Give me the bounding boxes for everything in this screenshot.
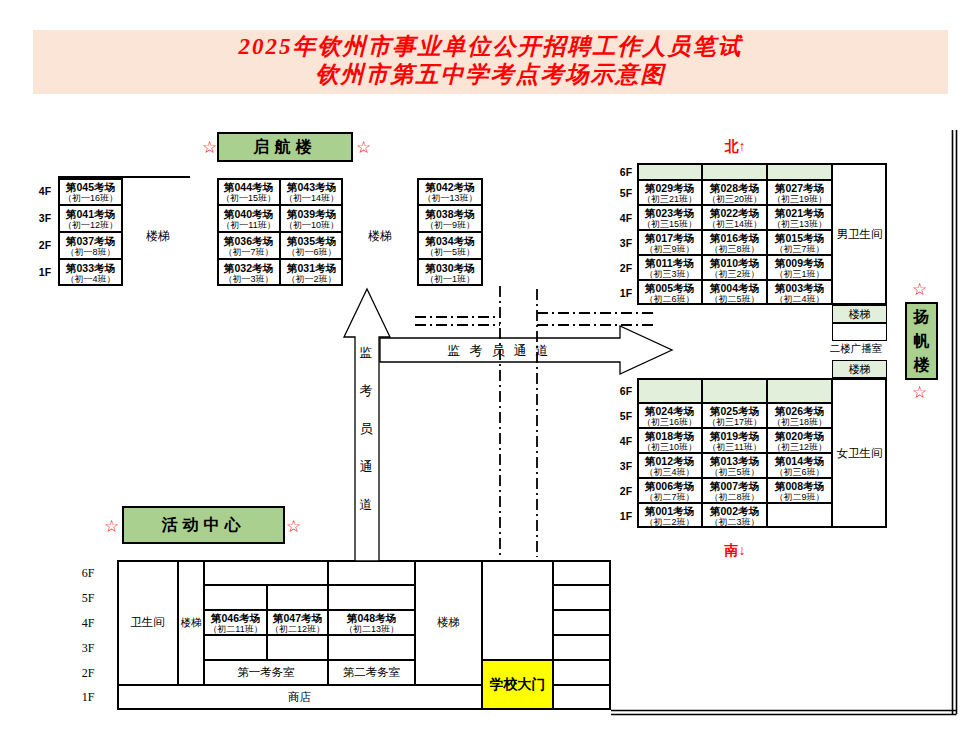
- exam-room-number: 第041考场: [66, 208, 115, 220]
- exam-room-cell: 第035考场 （初一6班）: [280, 232, 343, 259]
- exam-room-cell: 第037考场 （初一8班）: [58, 232, 123, 259]
- exam-room-class: （初三15班）: [642, 219, 697, 229]
- empty-cell: [482, 560, 553, 660]
- empty-cell: [832, 323, 887, 341]
- exam-room-number: 第019考场: [710, 430, 759, 442]
- yangfan-south-floor-4f: 4F: [617, 434, 635, 448]
- exam-room-cell: 第003考场 （初二4班）: [767, 280, 832, 305]
- exam-room-number: 第045考场: [66, 181, 115, 193]
- exam-room-number: 第021考场: [775, 207, 824, 219]
- empty-cell: [553, 560, 611, 585]
- exam-room-class: （初二2班）: [644, 517, 694, 527]
- exam-room-class: （初一10班）: [284, 220, 339, 230]
- exam-room-cell: 第025考场 （初三17班）: [702, 403, 767, 428]
- exam-room-number: 第027考场: [775, 182, 824, 194]
- exam-room-class: （初三18班）: [772, 417, 827, 427]
- exam-room-number: 第048考场: [347, 612, 396, 624]
- exam-room-cell: 第007考场 （初二8班）: [702, 478, 767, 503]
- empty-cell: [204, 635, 267, 660]
- yangfan-north-rooms: 第029考场 （初三21班） 第028考场 （初三20班） 第027考场 （初三…: [637, 180, 832, 305]
- exam-room-cell: 第002考场 （初二3班）: [702, 503, 767, 528]
- star-icon: ☆: [104, 518, 119, 535]
- exam-room-class: （初一11班）: [221, 220, 275, 230]
- empty-cell: [553, 685, 611, 710]
- shop-cell: 商店: [117, 685, 482, 710]
- empty-cell: [328, 585, 415, 610]
- exam-room-number: 第005考场: [645, 282, 694, 294]
- exam-room-cell: 第009考场 （初三1班）: [767, 255, 832, 280]
- exam-room-class: （初一7班）: [223, 247, 273, 257]
- exam-room-cell: 第040考场 （初一11班）: [217, 205, 280, 232]
- exam-room-cell: 第038考场 （初一9班）: [417, 205, 483, 232]
- empty-cell: [637, 163, 702, 180]
- empty-cell: [553, 660, 611, 685]
- empty-cell: [702, 163, 767, 180]
- exam-room-cell: 第042考场 （初一13班）: [417, 178, 483, 205]
- invigilator-corridor-label-horizontal: 监考员通道: [390, 342, 615, 360]
- yangfan-south-floor-1f: 1F: [617, 509, 635, 523]
- yangfan-south-floor-6f: 6F: [617, 384, 635, 398]
- star-icon: ☆: [286, 518, 301, 535]
- exam-room-number: 第001考场: [645, 505, 694, 517]
- stairs-cell: 楼梯: [832, 305, 887, 323]
- west-annex-stairs-label: 楼梯: [130, 229, 186, 243]
- west-floor-1f: 1F: [34, 265, 56, 279]
- exam-room-number: 第036考场: [224, 235, 273, 247]
- exam-room-number: 第039考场: [287, 208, 336, 220]
- activity-floor-3f: 3F: [74, 641, 102, 655]
- exam-room-class: （初一1班）: [425, 274, 475, 284]
- qihang-right-wing-rooms: 第042考场 （初一13班） 第038考场 （初一9班） 第034考场 （初一5…: [417, 178, 483, 286]
- exam-room-class: （初三14班）: [707, 219, 762, 229]
- invigilator-corridor-label-vertical: 监考员通道: [356, 334, 376, 534]
- exam-room-cell: 第027考场 （初三19班）: [767, 180, 832, 205]
- activity-center-rooms: 第046考场 （初二11班） 第047考场 （初二12班） 第048考场 （初二…: [204, 610, 415, 635]
- stairs-cell: 楼梯: [178, 560, 204, 685]
- exam-room-cell: 第022考场 （初三14班）: [702, 205, 767, 230]
- empty-cell: [328, 635, 415, 660]
- exam-room-class: （初一3班）: [223, 274, 273, 284]
- exam-room-cell: 第048考场 （初二13班）: [328, 610, 415, 635]
- star-icon: ☆: [202, 139, 217, 156]
- title-line-2: 钦州市第五中学考点考场示意图: [33, 61, 948, 89]
- exam-room-number: 第043考场: [287, 181, 336, 193]
- exam-room-cell: 第031考场 （初一2班）: [280, 259, 343, 286]
- exam-site-map: 2025年钦州市事业单位公开招聘工作人员笔试 钦州市第五中学考点考场示意图 4F…: [0, 0, 978, 752]
- exam-room-class: （初二6班）: [644, 294, 694, 304]
- west-floor-4f: 4F: [34, 184, 56, 198]
- yangfan-south-floor-3f: 3F: [617, 459, 635, 473]
- exam-room-class: （初一15班）: [221, 193, 276, 203]
- exam-room-cell: 第044考场 （初一15班）: [217, 178, 280, 205]
- exam-room-cell: 第041考场 （初一12班）: [58, 205, 123, 232]
- exam-room-number: 第033考场: [66, 262, 115, 274]
- building-label-qihang: 启航楼: [217, 132, 353, 162]
- empty-cell: [328, 560, 415, 585]
- exam-room-number: 第007考场: [710, 480, 759, 492]
- empty-cell: [767, 163, 832, 180]
- exam-room-cell: 第030考场 （初一1班）: [417, 259, 483, 286]
- exam-room-cell: 第046考场 （初二11班）: [204, 610, 267, 635]
- exam-room-number: 第009考场: [775, 257, 824, 269]
- exam-room-class: （初一14班）: [284, 193, 339, 203]
- west-floor-2f: 2F: [34, 238, 56, 252]
- stairs-cell: 楼梯: [415, 560, 482, 685]
- exam-room-number: 第046考场: [211, 612, 260, 624]
- empty-cell: [553, 610, 611, 635]
- exam-room-cell: 第026考场 （初三18班）: [767, 403, 832, 428]
- title-banner: 2025年钦州市事业单位公开招聘工作人员笔试 钦州市第五中学考点考场示意图: [33, 30, 948, 94]
- exam-room-class: （初三8班）: [709, 244, 759, 254]
- exam-room-cell: 第010考场 （初三2班）: [702, 255, 767, 280]
- exam-room-number: 第026考场: [775, 405, 824, 417]
- empty-cell: [637, 378, 702, 403]
- building-label-activity-center: 活动中心: [122, 506, 285, 544]
- exam-room-class: （初三3班）: [644, 269, 694, 279]
- exam-room-class: （初二12班）: [270, 624, 325, 634]
- exam-room-number: 第017考场: [645, 232, 694, 244]
- exam-room-class: （初一6班）: [286, 247, 336, 257]
- school-gate: 学校大门: [482, 660, 553, 710]
- exam-room-number: 第022考场: [710, 207, 759, 219]
- exam-room-number: 第032考场: [224, 262, 273, 274]
- exam-room-cell: 第043考场 （初一14班）: [280, 178, 343, 205]
- yangfan-north-floor-2f: 2F: [617, 261, 635, 275]
- exam-room-cell: 第017考场 （初三9班）: [637, 230, 702, 255]
- exam-room-class: （初二11班）: [208, 624, 262, 634]
- exam-room-cell: 第036考场 （初一7班）: [217, 232, 280, 259]
- exam-room-cell: 第021考场 （初三13班）: [767, 205, 832, 230]
- exam-room-class: （初三7班）: [774, 244, 824, 254]
- exam-room-cell: 第023考场 （初三15班）: [637, 205, 702, 230]
- activity-floor-6f: 6F: [74, 566, 102, 580]
- exam-room-number: 第029考场: [645, 182, 694, 194]
- exam-room-cell: 第020考场 （初三12班）: [767, 428, 832, 453]
- exam-room-number: 第028考场: [710, 182, 759, 194]
- exam-room-number: 第006考场: [645, 480, 694, 492]
- exam-room-number: 第015考场: [775, 232, 824, 244]
- exam-room-cell: 第008考场 （初二9班）: [767, 478, 832, 503]
- exam-room-cell: 第028考场 （初三20班）: [702, 180, 767, 205]
- west-floor-3f: 3F: [34, 211, 56, 225]
- west-annex-rooms: 第045考场 （初一16班） 第041考场 （初一12班） 第037考场 （初一…: [58, 178, 123, 286]
- exam-room-number: 第004考场: [710, 282, 759, 294]
- stairs-cell: 楼梯: [832, 360, 887, 378]
- exam-room-class: （初一5班）: [425, 247, 475, 257]
- yangfan-north-floor-1f: 1F: [617, 286, 635, 300]
- exam-room-class: （初三4班）: [644, 467, 694, 477]
- empty-cell: [767, 378, 832, 403]
- yangfan-south-rooms: 第024考场 （初三16班） 第025考场 （初三17班） 第026考场 （初三…: [637, 403, 832, 528]
- qihang-left-wing-rooms: 第044考场 （初一15班） 第043考场 （初一14班） 第040考场 （初一…: [217, 178, 343, 286]
- exam-room-number: 第010考场: [710, 257, 759, 269]
- exam-room-class: （初三19班）: [772, 194, 827, 204]
- exam-room-cell: 第033考场 （初一4班）: [58, 259, 123, 286]
- exam-room-class: （初三9班）: [644, 244, 694, 254]
- exam-room-class: （初一13班）: [422, 193, 477, 203]
- exam-room-number: 第023考场: [645, 207, 694, 219]
- exam-room-number: 第034考场: [425, 235, 474, 247]
- mens-restroom: 男卫生间: [832, 163, 887, 305]
- exam-room-number: 第037考场: [66, 235, 115, 247]
- exam-room-class: （初一12班）: [63, 220, 118, 230]
- exam-room-class: （初一2班）: [286, 274, 336, 284]
- exam-room-cell: 第034考场 （初一5班）: [417, 232, 483, 259]
- yangfan-south-floor-2f: 2F: [617, 484, 635, 498]
- compass-south: 南↓: [695, 542, 775, 560]
- exam-room-number: 第024考场: [645, 405, 694, 417]
- exam-room-class: （初三1班）: [774, 269, 824, 279]
- exam-room-cell: 第005考场 （初二6班）: [637, 280, 702, 305]
- restroom-cell: 卫生间: [117, 560, 178, 685]
- compass-north: 北↑: [695, 138, 775, 156]
- empty-cell: [553, 585, 611, 610]
- exam-room-number: 第042考场: [425, 181, 474, 193]
- exam-room-class: （初一8班）: [65, 247, 115, 257]
- exam-room-number: 第020考场: [775, 430, 824, 442]
- empty-cell: [553, 635, 611, 660]
- exam-office-1: 第一考务室: [204, 660, 328, 685]
- exam-room-class: （初三13班）: [772, 219, 827, 229]
- exam-office-2: 第二考务室: [328, 660, 415, 685]
- exam-room-class: （初三16班）: [642, 417, 697, 427]
- exam-room-number: 第008考场: [775, 480, 824, 492]
- exam-room-cell: 第001考场 （初二2班）: [637, 503, 702, 528]
- exam-room-number: 第018考场: [645, 430, 694, 442]
- exam-room-class: （初二13班）: [344, 624, 399, 634]
- yangfan-north-floor-6f: 6F: [617, 165, 635, 179]
- qihang-stairs-label: 楼梯: [350, 229, 410, 243]
- empty-cell: [204, 585, 267, 610]
- activity-floor-1f: 1F: [74, 690, 102, 704]
- exam-room-class: （初三21班）: [642, 194, 697, 204]
- exam-room-cell: 第006考场 （初二7班）: [637, 478, 702, 503]
- exam-room-number: 第035考场: [287, 235, 336, 247]
- exam-room-cell: 第029考场 （初三21班）: [637, 180, 702, 205]
- exam-room-cell: 第039考场 （初一10班）: [280, 205, 343, 232]
- exam-room-class: （初二9班）: [774, 492, 824, 502]
- empty-cell: [267, 585, 328, 610]
- broadcast-room-label: 二楼广播室: [816, 341, 896, 355]
- exam-room-number: 第025考场: [710, 405, 759, 417]
- exam-room-cell: 第016考场 （初三8班）: [702, 230, 767, 255]
- exam-room-class: （初三6班）: [774, 467, 824, 477]
- exam-room-number: 第047考场: [273, 612, 322, 624]
- exam-room-number: 第012考场: [645, 455, 694, 467]
- star-icon: ☆: [912, 281, 927, 298]
- exam-room-cell: 第032考场 （初一3班）: [217, 259, 280, 286]
- exam-room-cell: 第015考场 （初三7班）: [767, 230, 832, 255]
- yangfan-north-floor-5f: 5F: [617, 186, 635, 200]
- exam-room-cell: 第045考场 （初一16班）: [58, 178, 123, 205]
- empty-cell: [267, 635, 328, 660]
- exam-room-number: 第011考场: [645, 257, 693, 269]
- exam-room-number: 第016考场: [710, 232, 759, 244]
- exam-room-cell: [767, 503, 832, 528]
- exam-room-class: （初二3班）: [709, 517, 759, 527]
- exam-room-class: （初三12班）: [772, 442, 827, 452]
- exam-room-cell: 第013考场 （初三5班）: [702, 453, 767, 478]
- exam-room-class: （初三10班）: [642, 442, 697, 452]
- activity-floor-2f: 2F: [74, 666, 102, 680]
- exam-room-class: （初三2班）: [709, 269, 759, 279]
- exam-room-cell: 第012考场 （初三4班）: [637, 453, 702, 478]
- exam-room-cell: 第014考场 （初三6班）: [767, 453, 832, 478]
- exam-room-number: 第044考场: [224, 181, 273, 193]
- exam-room-class: （初一9班）: [425, 220, 475, 230]
- exam-room-class: （初三20班）: [707, 194, 762, 204]
- yangfan-south-floor-5f: 5F: [617, 409, 635, 423]
- exam-room-number: 第002考场: [710, 505, 759, 517]
- exam-room-number: 第040考场: [224, 208, 273, 220]
- star-icon: ☆: [912, 384, 927, 401]
- exam-room-cell: 第019考场 （初三11班）: [702, 428, 767, 453]
- exam-room-number: 第038考场: [425, 208, 474, 220]
- activity-floor-4f: 4F: [74, 616, 102, 630]
- exam-room-number: 第014考场: [775, 455, 824, 467]
- exam-room-class: （初三17班）: [707, 417, 762, 427]
- building-label-yangfan: 扬帆楼: [905, 302, 938, 380]
- exam-room-number: 第003考场: [775, 282, 824, 294]
- exam-room-class: （初一16班）: [63, 193, 118, 203]
- exam-room-number: 第013考场: [710, 455, 759, 467]
- womens-restroom: 女卫生间: [832, 378, 887, 528]
- exam-room-class: （初二8班）: [709, 492, 759, 502]
- exam-room-class: （初三11班）: [707, 442, 761, 452]
- exam-room-class: （初三5班）: [709, 467, 759, 477]
- empty-cell: [204, 560, 328, 585]
- activity-floor-5f: 5F: [74, 591, 102, 605]
- exam-room-class: （初二4班）: [774, 294, 824, 304]
- yangfan-north-floor-3f: 3F: [617, 236, 635, 250]
- star-icon: ☆: [356, 139, 371, 156]
- empty-cell: [702, 378, 767, 403]
- exam-room-cell: 第047考场 （初二12班）: [267, 610, 328, 635]
- yangfan-north-floor-4f: 4F: [617, 211, 635, 225]
- exam-room-cell: 第018考场 （初三10班）: [637, 428, 702, 453]
- exam-room-number: 第030考场: [425, 262, 474, 274]
- exam-room-class: （初二7班）: [644, 492, 694, 502]
- exam-room-cell: 第011考场 （初三3班）: [637, 255, 702, 280]
- exam-room-class: （初一4班）: [65, 274, 115, 284]
- exam-room-cell: 第004考场 （初二5班）: [702, 280, 767, 305]
- exam-room-class: （初二5班）: [709, 294, 759, 304]
- title-line-1: 2025年钦州市事业单位公开招聘工作人员笔试: [33, 33, 948, 61]
- exam-room-number: 第031考场: [287, 262, 336, 274]
- exam-room-cell: 第024考场 （初三16班）: [637, 403, 702, 428]
